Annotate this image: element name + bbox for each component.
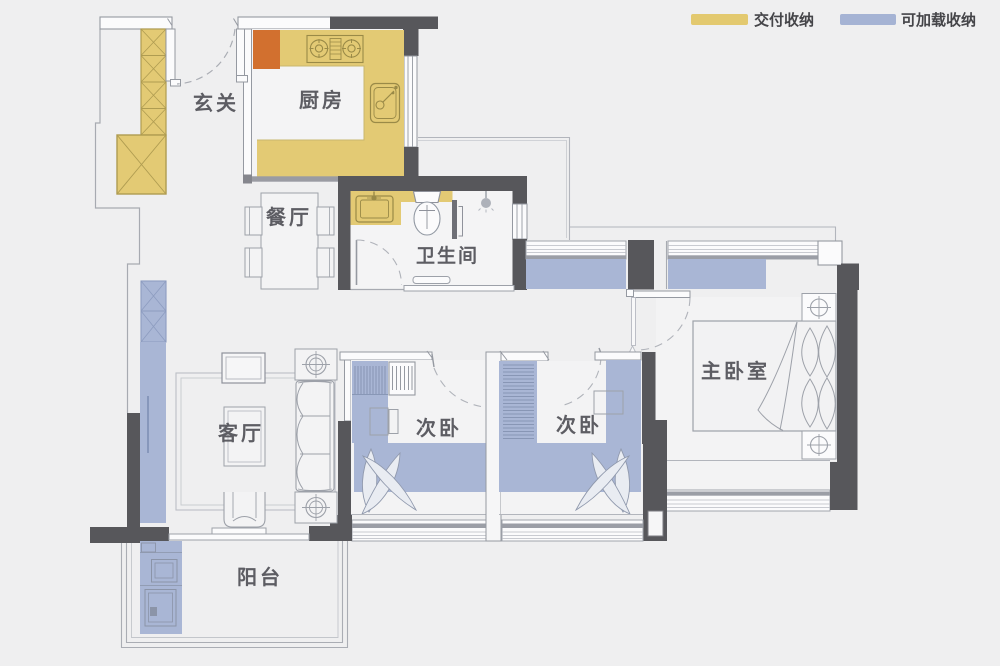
svg-text:主卧室: 主卧室 [701, 359, 770, 383]
svg-text:厨房: 厨房 [299, 88, 345, 112]
svg-text:玄关: 玄关 [193, 91, 239, 115]
svg-text:卫生间: 卫生间 [416, 244, 479, 267]
svg-text:餐厅: 餐厅 [266, 205, 312, 229]
svg-text:可加载收纳: 可加载收纳 [901, 11, 976, 29]
svg-text:交付收纳: 交付收纳 [754, 11, 814, 29]
svg-text:客厅: 客厅 [217, 421, 264, 445]
svg-text:次卧: 次卧 [556, 413, 602, 437]
svg-text:次卧: 次卧 [416, 416, 462, 440]
svg-text:阳台: 阳台 [237, 565, 283, 589]
